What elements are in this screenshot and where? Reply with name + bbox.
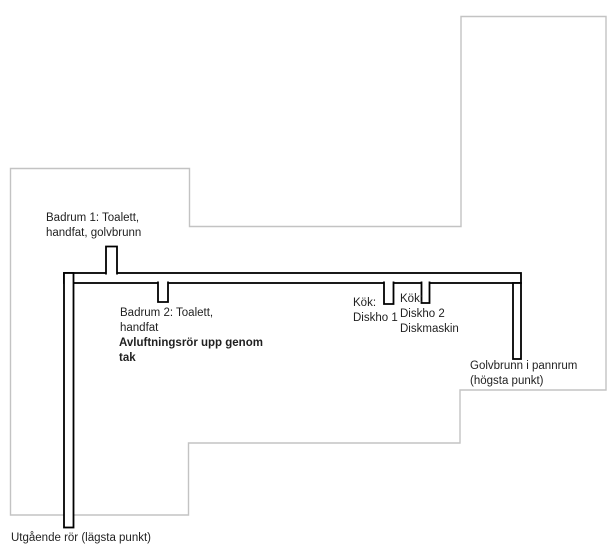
label-badrum1: Badrum 1: Toalett, handfat, golvbrunn — [46, 211, 141, 241]
diagram-canvas: Badrum 1: Toalett, handfat, golvbrunn Ba… — [0, 0, 613, 550]
label-avluftningsror: Avluftningsrör upp genom tak — [119, 336, 263, 366]
label-kok-diskho1: Kök: Diskho 1 — [353, 296, 398, 326]
building-outline — [11, 17, 607, 516]
floorplan-svg — [0, 0, 613, 550]
badrum2-stub-pipe — [158, 282, 168, 303]
label-kok-diskho2: Kök: Diskho 2 Diskmaskin — [400, 292, 459, 337]
badrum1-stub-pipe — [106, 247, 117, 275]
label-utgaende-ror: Utgående rör (lägsta punkt) — [11, 531, 151, 546]
pannrum-riser-pipe — [513, 283, 521, 359]
label-badrum2: Badrum 2: Toalett, handfat — [120, 306, 213, 336]
outgoing-pipe — [64, 273, 74, 528]
pipe-network — [64, 247, 521, 528]
label-golvbrunn-pannrum: Golvbrunn i pannrum (högsta punkt) — [470, 359, 577, 389]
main-drain-pipe — [64, 273, 521, 283]
